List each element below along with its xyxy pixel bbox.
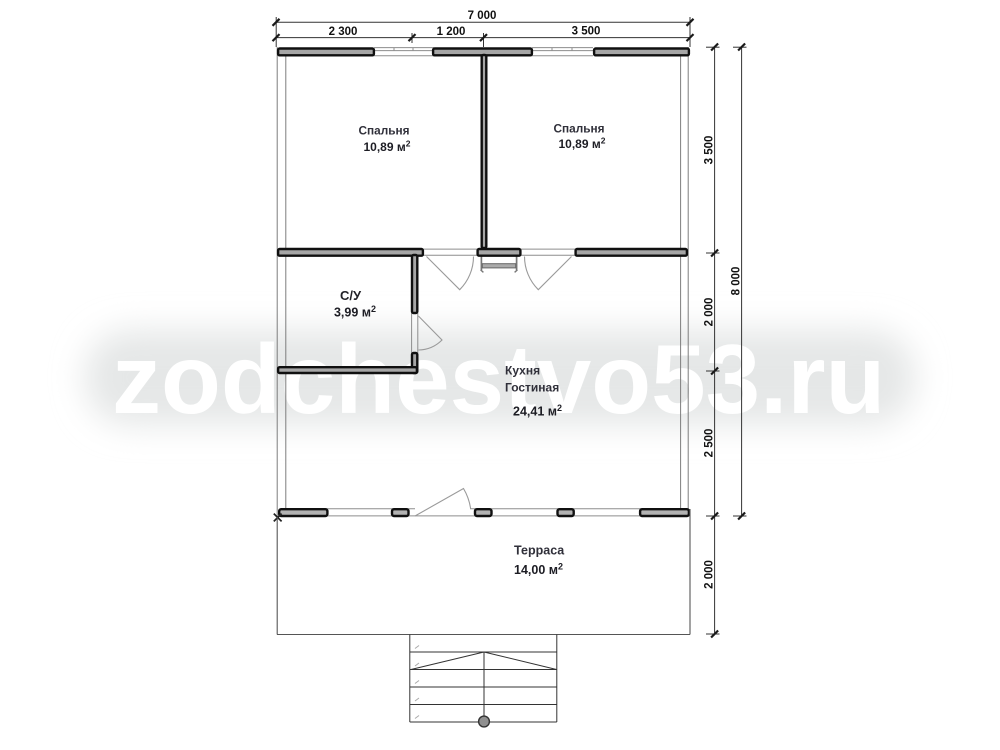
svg-text:Гостиная: Гостиная <box>505 381 559 395</box>
svg-text:7 000: 7 000 <box>468 10 497 22</box>
svg-text:3 500: 3 500 <box>704 136 716 165</box>
svg-text:3 500: 3 500 <box>572 26 601 38</box>
svg-text:2 300: 2 300 <box>329 26 358 38</box>
svg-text:zodchestvo53.ru: zodchestvo53.ru <box>112 324 885 434</box>
svg-text:Спальня: Спальня <box>554 122 605 136</box>
svg-text:14,00 м2: 14,00 м2 <box>514 562 563 578</box>
svg-text:Терраса: Терраса <box>514 544 565 558</box>
svg-text:10,89 м2: 10,89 м2 <box>364 139 411 155</box>
svg-text:1 200: 1 200 <box>437 26 466 38</box>
svg-text:Кухня: Кухня <box>505 364 540 378</box>
svg-text:8 000: 8 000 <box>731 267 743 296</box>
svg-text:2 000: 2 000 <box>704 298 716 327</box>
svg-text:С/У: С/У <box>340 288 362 303</box>
svg-text:2 000: 2 000 <box>704 560 716 589</box>
svg-text:3,99 м2: 3,99 м2 <box>334 304 376 320</box>
svg-text:24,41 м2: 24,41 м2 <box>513 403 562 419</box>
svg-text:Спальня: Спальня <box>359 124 410 138</box>
svg-text:10,89 м2: 10,89 м2 <box>559 135 606 151</box>
svg-text:2 500: 2 500 <box>704 429 716 458</box>
